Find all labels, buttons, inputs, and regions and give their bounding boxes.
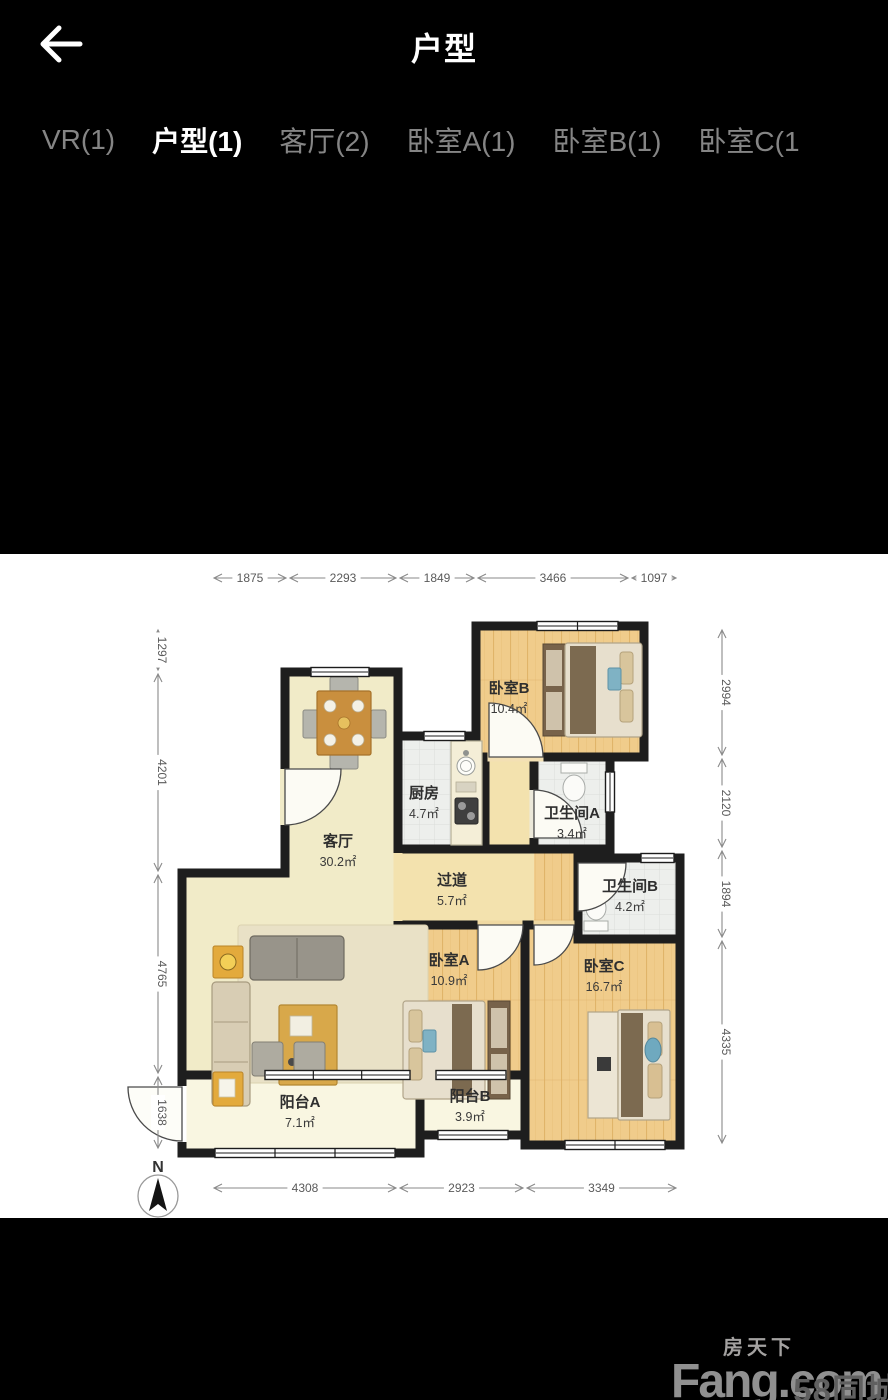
svg-text:1894: 1894 [719,881,733,908]
tab-4[interactable]: 卧室B(1) [553,120,662,160]
svg-text:4308: 4308 [292,1181,319,1195]
svg-text:2120: 2120 [719,790,733,817]
compass-label: N [152,1159,164,1176]
room-label-living: 客厅 [322,832,353,850]
svg-text:2293: 2293 [330,571,357,585]
room-label-bedB: 卧室B [489,679,530,697]
svg-text:3466: 3466 [540,571,567,585]
tab-1[interactable]: 户型(1) [152,120,242,160]
room-area-bedB: 10.4㎡ [491,702,528,716]
tab-3[interactable]: 卧室A(1) [407,120,516,160]
room-area-kitchen: 4.7㎡ [409,807,439,821]
svg-text:4201: 4201 [155,759,169,786]
svg-text:1849: 1849 [424,571,451,585]
photo-viewer-screen: 户型 VR(1)户型(1)客厅(2)卧室A(1)卧室B(1)卧室C(1 客厅30… [0,0,888,1400]
floorplan-image[interactable]: 客厅30.2㎡厨房4.7㎡过道5.7㎡卧室A10.9㎡卧室B10.4㎡卧室C16… [0,554,888,1218]
page-title: 户型 [0,24,888,70]
room-area-bathA: 3.4㎡ [557,827,587,841]
room-label-bathB: 卫生间B [602,877,658,895]
svg-text:1638: 1638 [155,1099,169,1126]
svg-text:4335: 4335 [719,1029,733,1056]
header: 户型 [0,0,888,96]
watermark: 房天下 Fang.com 58同城 [671,1331,886,1400]
room-label-balconyA: 阳台A [280,1093,321,1111]
room-label-balconyB: 阳台B [450,1087,491,1105]
room-area-bedA: 10.9㎡ [431,974,468,988]
watermark-partner: 58同城 [793,1364,888,1400]
room-label-bedC: 卧室C [584,957,625,975]
room-area-balconyB: 3.9㎡ [455,1110,485,1124]
svg-text:3349: 3349 [588,1181,615,1195]
footer: 房天下 Fang.com 58同城 [0,1218,888,1400]
room-label-bathA: 卫生间A [544,804,600,822]
svg-text:1875: 1875 [237,571,264,585]
room-label-bedA: 卧室A [429,951,470,969]
room-area-hall: 5.7㎡ [437,894,467,908]
room-area-bathB: 4.2㎡ [615,900,645,914]
room-area-living: 30.2㎡ [320,855,357,869]
floorplan-svg: 客厅30.2㎡厨房4.7㎡过道5.7㎡卧室A10.9㎡卧室B10.4㎡卧室C16… [0,554,888,1218]
tab-bar: VR(1)户型(1)客厅(2)卧室A(1)卧室B(1)卧室C(1 [0,110,888,170]
tab-0[interactable]: VR(1) [42,124,115,156]
room-label-kitchen: 厨房 [409,784,439,802]
svg-text:1097: 1097 [641,571,668,585]
tab-5[interactable]: 卧室C(1 [698,120,799,160]
tab-2[interactable]: 客厅(2) [279,120,369,160]
svg-text:4765: 4765 [155,961,169,988]
svg-text:2923: 2923 [448,1181,475,1195]
room-label-hall: 过道 [437,871,467,889]
room-area-balconyA: 7.1㎡ [285,1116,315,1130]
svg-text:1297: 1297 [155,637,169,664]
svg-text:2994: 2994 [719,679,733,706]
room-area-bedC: 16.7㎡ [586,980,623,994]
